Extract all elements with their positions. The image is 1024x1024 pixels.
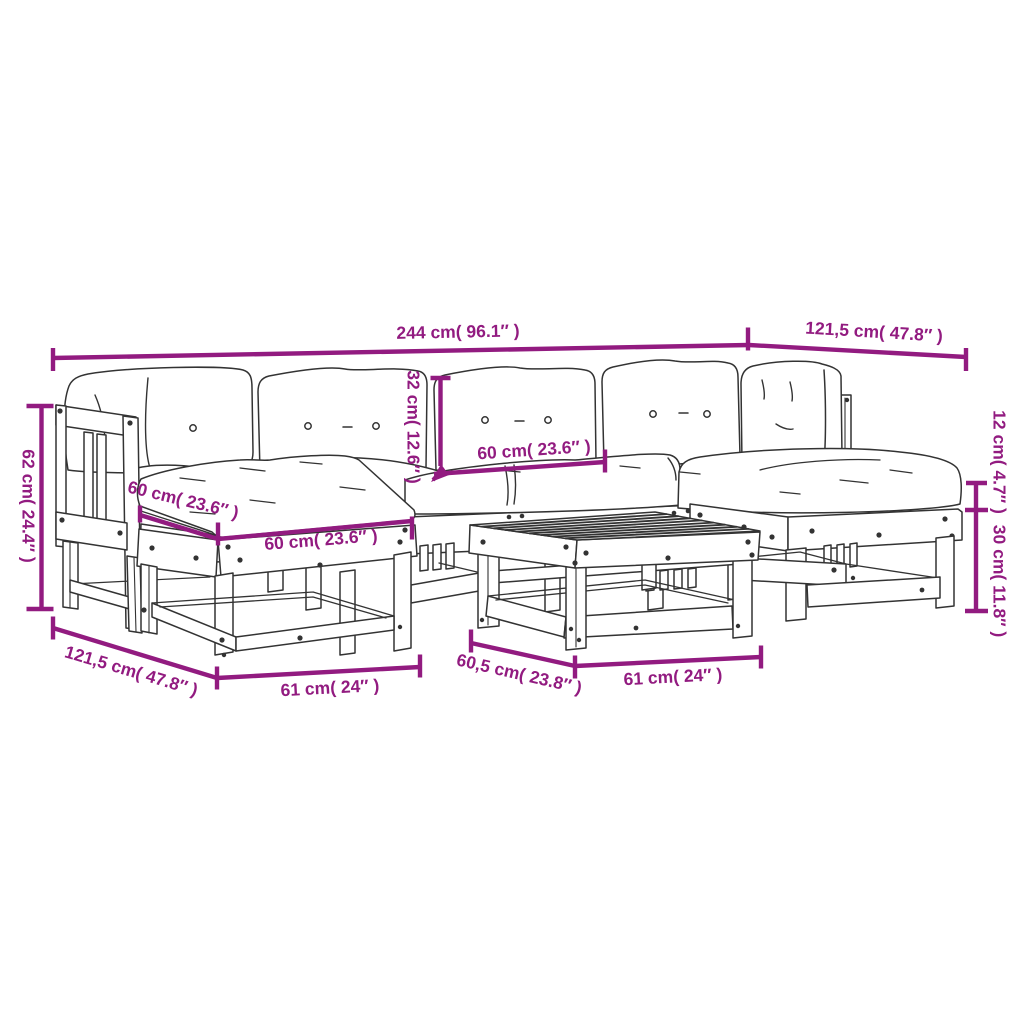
svg-text:244 cm( 96.1″ ): 244 cm( 96.1″ ): [396, 320, 520, 343]
svg-text:62 cm( 24.4″ ): 62 cm( 24.4″ ): [18, 449, 38, 562]
svg-text:30 cm( 11.8″ ): 30 cm( 11.8″ ): [989, 525, 1009, 637]
svg-text:12 cm( 4.7″ ): 12 cm( 4.7″ ): [989, 410, 1009, 514]
svg-text:32 cm( 12.6″ ): 32 cm( 12.6″ ): [403, 370, 423, 483]
